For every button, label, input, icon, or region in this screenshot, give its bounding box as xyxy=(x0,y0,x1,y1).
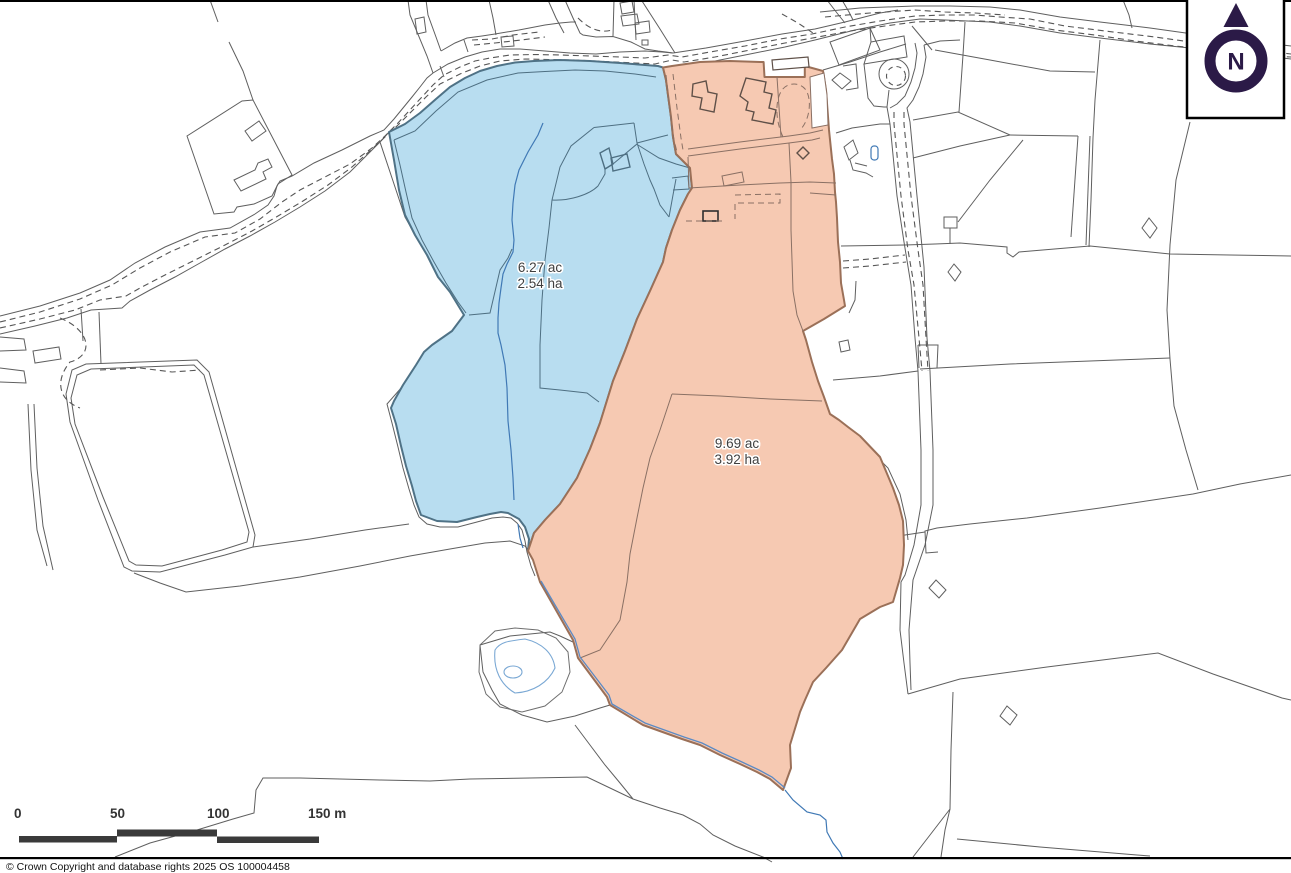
svg-text:0: 0 xyxy=(14,806,22,821)
svg-text:100: 100 xyxy=(207,806,230,821)
svg-text:9.69 ac: 9.69 ac xyxy=(715,436,760,451)
svg-text:N: N xyxy=(1227,49,1244,76)
svg-text:6.27 ac: 6.27 ac xyxy=(518,260,563,275)
svg-text:© Crown Copyright and database: © Crown Copyright and database rights 20… xyxy=(6,861,290,873)
svg-text:150 m: 150 m xyxy=(308,806,346,821)
svg-text:3.92 ha: 3.92 ha xyxy=(714,452,760,467)
svg-text:50: 50 xyxy=(110,806,125,821)
svg-text:2.54 ha: 2.54 ha xyxy=(517,276,563,291)
